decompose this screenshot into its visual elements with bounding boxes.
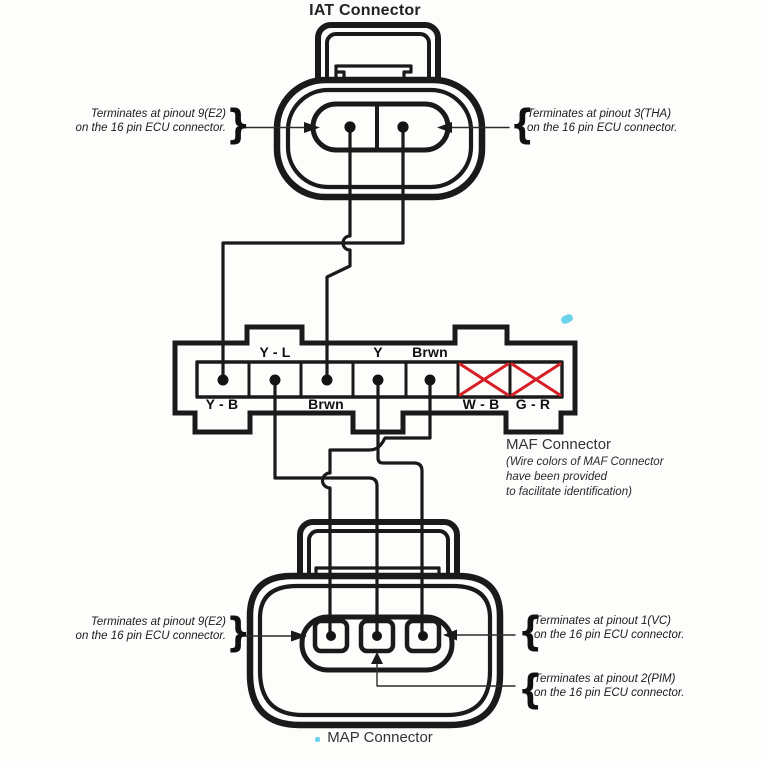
maf-note-line: to facilitate identification)	[506, 485, 681, 500]
annotation-line: on the 16 pin ECU connector.	[40, 122, 226, 136]
annotation-line: Terminates at pinout 9(E2)	[40, 108, 226, 122]
wiring-diagram-page: IAT Connector Terminates at pinout 9(E2)…	[0, 0, 762, 762]
maf-note: (Wire colors of MAF Connector have been …	[506, 455, 681, 500]
brace-right-icon: }	[226, 102, 250, 148]
map-pin-pim	[372, 631, 382, 641]
annotation-line: Terminates at pinout 1(VC)	[534, 615, 749, 629]
maf-label-bottom-brwn: Brwn	[294, 397, 358, 411]
maf-pin-4	[373, 375, 384, 386]
iat-pin-tha	[397, 121, 408, 132]
iat-pin-cavity	[313, 104, 448, 150]
annotation-map-pim: Terminates at pinout 2(PIM) on the 16 pi…	[534, 673, 749, 700]
map-pin-vc	[418, 631, 428, 641]
map-pin-e2	[326, 631, 336, 641]
maf-pin-2	[270, 375, 281, 386]
annotation-map-vc: Terminates at pinout 1(VC) on the 16 pin…	[534, 615, 749, 642]
annotation-line: Terminates at pinout 9(E2)	[40, 616, 226, 630]
maf-label-bottom-yb: Y - B	[190, 397, 254, 411]
maf-note-line: (Wire colors of MAF Connector	[506, 455, 681, 470]
maf-label-top-yl: Y - L	[243, 345, 307, 359]
annotation-iat-e2: Terminates at pinout 9(E2) on the 16 pin…	[40, 108, 226, 135]
maf-pin-5	[425, 375, 436, 386]
iat-title: IAT Connector	[265, 2, 465, 20]
annotation-iat-tha: Terminates at pinout 3(THA) on the 16 pi…	[527, 108, 742, 135]
annotation-line: Terminates at pinout 3(THA)	[527, 108, 742, 122]
iat-connector-drawing	[277, 25, 482, 197]
maf-pin-3	[322, 375, 333, 386]
annotation-line: on the 16 pin ECU connector.	[534, 629, 749, 643]
map-title: MAP Connector	[280, 729, 480, 746]
annotation-line: on the 16 pin ECU connector.	[40, 630, 226, 644]
annotation-map-e2: Terminates at pinout 9(E2) on the 16 pin…	[40, 616, 226, 643]
maf-note-line: have been provided	[506, 470, 681, 485]
scan-artifact	[315, 737, 320, 742]
brace-right-icon: }	[226, 610, 250, 656]
maf-pin-1	[218, 375, 229, 386]
maf-title: MAF Connector	[506, 436, 611, 453]
annotation-line: on the 16 pin ECU connector.	[527, 122, 742, 136]
annotation-line: Terminates at pinout 2(PIM)	[534, 673, 749, 687]
maf-label-bottom-gr: G - R	[501, 397, 565, 411]
iat-pin-e2	[344, 121, 355, 132]
annotation-line: on the 16 pin ECU connector.	[534, 687, 749, 701]
map-connector-drawing	[250, 522, 500, 725]
maf-label-top-brwn: Brwn	[398, 345, 462, 359]
